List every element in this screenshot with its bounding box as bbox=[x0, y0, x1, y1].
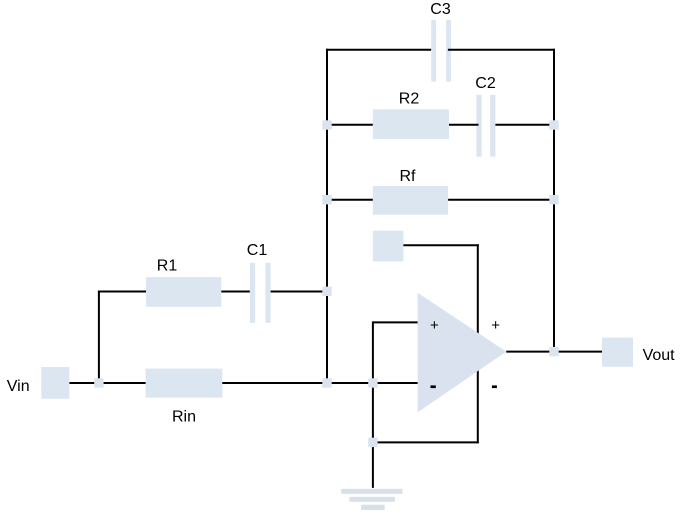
svg-text:Rf: Rf bbox=[400, 168, 417, 185]
svg-text:Vin: Vin bbox=[7, 378, 30, 395]
svg-text:C2: C2 bbox=[475, 75, 496, 92]
svg-text:C1: C1 bbox=[247, 242, 268, 259]
svg-text:R2: R2 bbox=[399, 91, 420, 108]
svg-text:C3: C3 bbox=[430, 1, 451, 18]
svg-text:+: + bbox=[430, 317, 439, 334]
svg-text:R1: R1 bbox=[157, 258, 178, 275]
svg-text:Rin: Rin bbox=[172, 408, 196, 425]
svg-text:+: + bbox=[491, 317, 500, 334]
svg-text:Vout: Vout bbox=[643, 347, 676, 364]
